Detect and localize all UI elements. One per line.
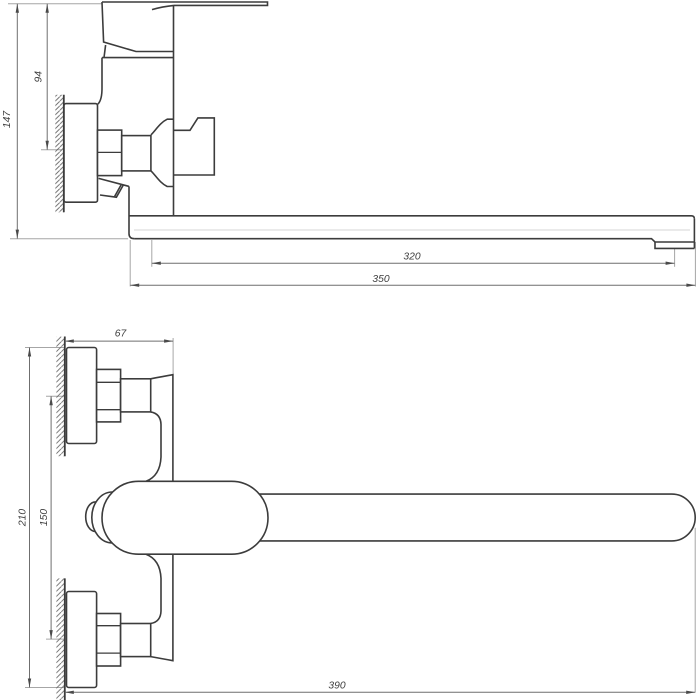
- svg-text:390: 390: [328, 681, 345, 692]
- svg-text:150: 150: [39, 509, 50, 526]
- svg-text:67: 67: [115, 329, 128, 340]
- svg-text:320: 320: [403, 252, 420, 263]
- svg-text:210: 210: [17, 509, 28, 527]
- svg-text:147: 147: [2, 110, 13, 128]
- svg-text:350: 350: [372, 274, 389, 285]
- svg-text:94: 94: [33, 71, 44, 83]
